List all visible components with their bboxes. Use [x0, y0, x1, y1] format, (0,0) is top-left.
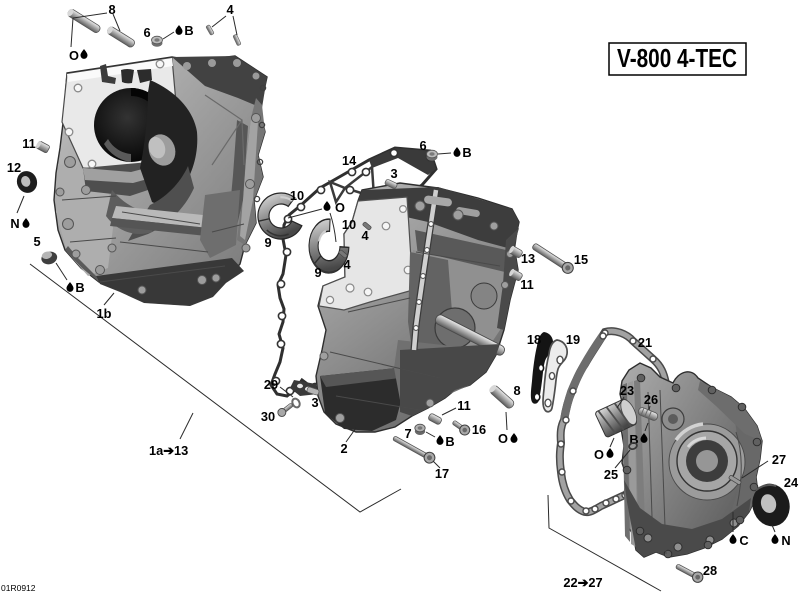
svg-text:15: 15	[574, 252, 588, 267]
svg-text:5: 5	[33, 234, 40, 249]
svg-text:27: 27	[772, 452, 786, 467]
svg-text:O: O	[498, 431, 508, 446]
svg-text:01R0912: 01R0912	[1, 583, 36, 593]
svg-text:2: 2	[340, 441, 347, 456]
svg-text:13: 13	[521, 251, 535, 266]
svg-text:4: 4	[226, 2, 234, 17]
svg-text:30: 30	[261, 409, 275, 424]
svg-text:1b: 1b	[97, 306, 112, 321]
svg-text:10: 10	[290, 188, 304, 203]
svg-text:11: 11	[520, 277, 534, 292]
svg-text:8: 8	[108, 2, 115, 17]
svg-text:10: 10	[342, 217, 356, 232]
svg-text:29: 29	[264, 377, 278, 392]
svg-text:B: B	[75, 280, 84, 295]
svg-text:B: B	[445, 434, 454, 449]
svg-text:18: 18	[527, 332, 541, 347]
svg-text:24: 24	[784, 475, 799, 490]
svg-text:N: N	[10, 216, 19, 231]
svg-text:11: 11	[457, 398, 471, 413]
svg-text:C: C	[739, 533, 748, 548]
svg-text:B: B	[462, 145, 471, 160]
svg-text:B: B	[184, 23, 193, 38]
svg-text:9: 9	[314, 265, 321, 280]
svg-text:1a➔13: 1a➔13	[149, 443, 188, 458]
svg-text:4: 4	[343, 257, 351, 272]
svg-text:16: 16	[472, 422, 486, 437]
svg-text:21: 21	[638, 335, 652, 350]
svg-text:12: 12	[7, 160, 21, 175]
svg-text:9: 9	[264, 235, 271, 250]
svg-text:4: 4	[361, 228, 369, 243]
svg-text:17: 17	[435, 466, 449, 481]
svg-text:7: 7	[404, 426, 411, 441]
svg-text:14: 14	[342, 153, 357, 168]
svg-text:N: N	[781, 533, 790, 548]
svg-text:O: O	[335, 200, 345, 215]
svg-text:3: 3	[311, 395, 318, 410]
svg-text:25: 25	[604, 467, 618, 482]
svg-text:26: 26	[644, 392, 658, 407]
svg-text:11: 11	[22, 136, 36, 151]
svg-text:6: 6	[419, 138, 426, 153]
svg-text:O: O	[69, 48, 79, 63]
svg-text:8: 8	[513, 383, 520, 398]
svg-text:22➔27: 22➔27	[563, 575, 602, 590]
svg-text:19: 19	[566, 332, 580, 347]
svg-text:6: 6	[143, 25, 150, 40]
svg-text:V-800 4-TEC: V-800 4-TEC	[617, 43, 737, 73]
svg-text:O: O	[594, 447, 604, 462]
svg-text:28: 28	[703, 563, 717, 578]
svg-text:23: 23	[620, 383, 634, 398]
svg-text:3: 3	[390, 166, 397, 181]
